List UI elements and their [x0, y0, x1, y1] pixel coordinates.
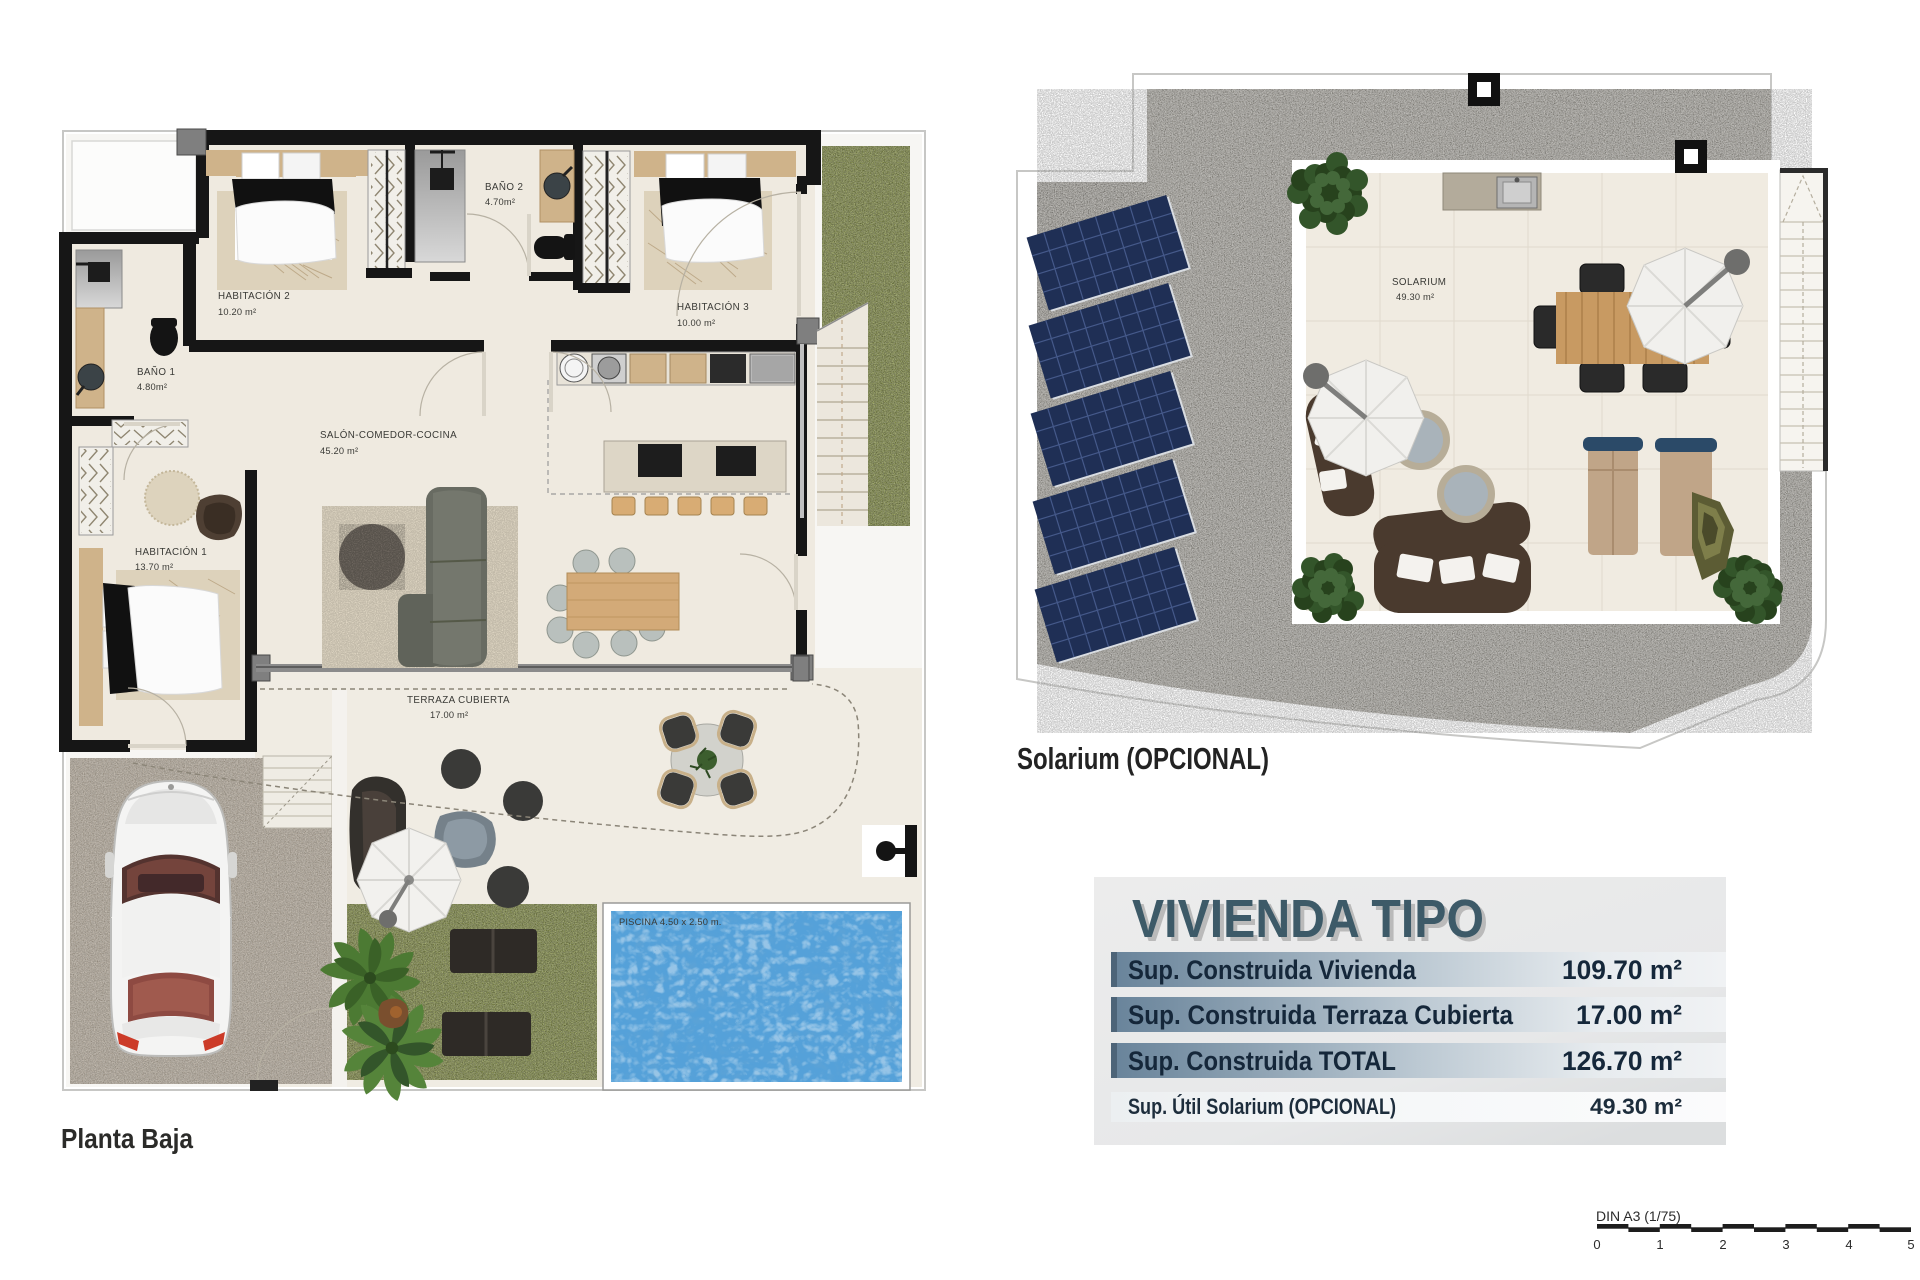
svg-text:PISCINA 4.50 x 2.50 m.: PISCINA 4.50 x 2.50 m. [619, 917, 722, 927]
svg-text:10.00 m²: 10.00 m² [677, 318, 715, 328]
svg-text:HABITACIÓN 1: HABITACIÓN 1 [135, 547, 207, 558]
svg-text:Sup. Construida Vivienda: Sup. Construida Vivienda [1128, 955, 1417, 985]
svg-text:TERRAZA CUBIERTA: TERRAZA CUBIERTA [407, 695, 510, 706]
svg-text:Sup. Útil Solarium (OPCIONAL): Sup. Útil Solarium (OPCIONAL) [1128, 1094, 1396, 1119]
svg-text:Sup. Construida TOTAL: Sup. Construida TOTAL [1128, 1046, 1396, 1076]
svg-text:SALÓN-COMEDOR-COCINA: SALÓN-COMEDOR-COCINA [320, 430, 457, 441]
svg-text:DIN A3 (1/75): DIN A3 (1/75) [1596, 1208, 1681, 1224]
svg-text:1: 1 [1656, 1237, 1663, 1252]
svg-text:SOLARIUM: SOLARIUM [1392, 277, 1446, 288]
svg-text:10.20 m²: 10.20 m² [218, 307, 256, 317]
svg-text:109.70 m²: 109.70 m² [1562, 955, 1682, 985]
svg-text:BAÑO 2: BAÑO 2 [485, 182, 523, 193]
svg-text:3: 3 [1782, 1237, 1789, 1252]
svg-text:13.70 m²: 13.70 m² [135, 562, 173, 572]
svg-text:HABITACIÓN 3: HABITACIÓN 3 [677, 302, 749, 313]
svg-text:49.30 m²: 49.30 m² [1396, 292, 1434, 302]
svg-text:4.80m²: 4.80m² [137, 382, 167, 392]
svg-text:17.00 m²: 17.00 m² [1576, 1000, 1682, 1030]
svg-text:HABITACIÓN 2: HABITACIÓN 2 [218, 291, 290, 302]
svg-text:2: 2 [1719, 1237, 1726, 1252]
svg-text:5: 5 [1907, 1237, 1914, 1252]
svg-text:Solarium (OPCIONAL): Solarium (OPCIONAL) [1017, 741, 1269, 776]
svg-text:Planta Baja: Planta Baja [61, 1123, 193, 1154]
svg-text:49.30 m²: 49.30 m² [1590, 1094, 1682, 1119]
svg-text:4.70m²: 4.70m² [485, 197, 515, 207]
svg-text:126.70 m²: 126.70 m² [1562, 1046, 1682, 1076]
svg-text:0: 0 [1593, 1237, 1600, 1252]
svg-text:BAÑO 1: BAÑO 1 [137, 367, 175, 378]
svg-text:VIVIENDA TIPO: VIVIENDA TIPO [1132, 889, 1484, 949]
svg-text:Sup. Construida Terraza Cubier: Sup. Construida Terraza Cubierta [1128, 1000, 1514, 1030]
svg-text:45.20 m²: 45.20 m² [320, 446, 358, 456]
svg-text:17.00 m²: 17.00 m² [430, 710, 468, 720]
svg-text:4: 4 [1845, 1237, 1852, 1252]
